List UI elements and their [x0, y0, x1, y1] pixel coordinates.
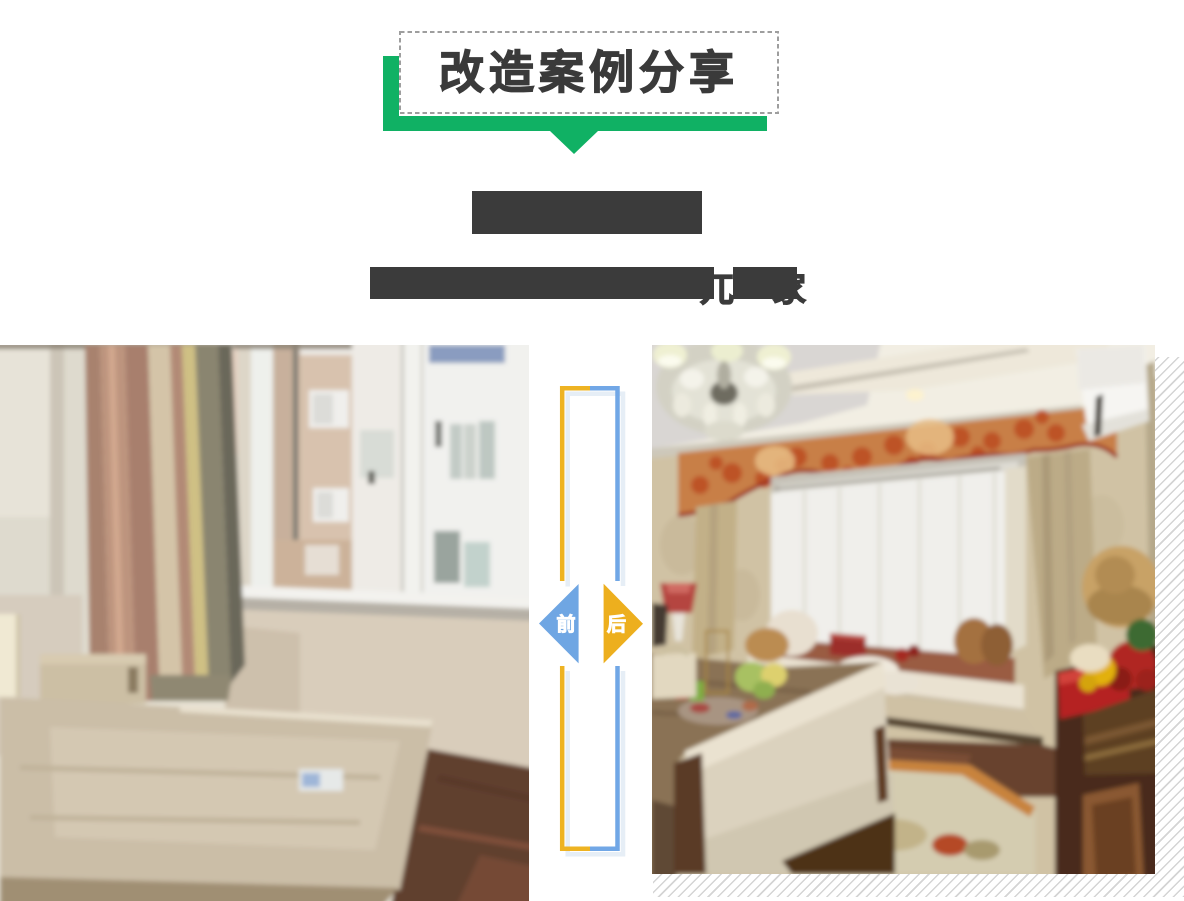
- svg-text:后: 后: [607, 614, 626, 636]
- svg-text:前: 前: [556, 613, 575, 636]
